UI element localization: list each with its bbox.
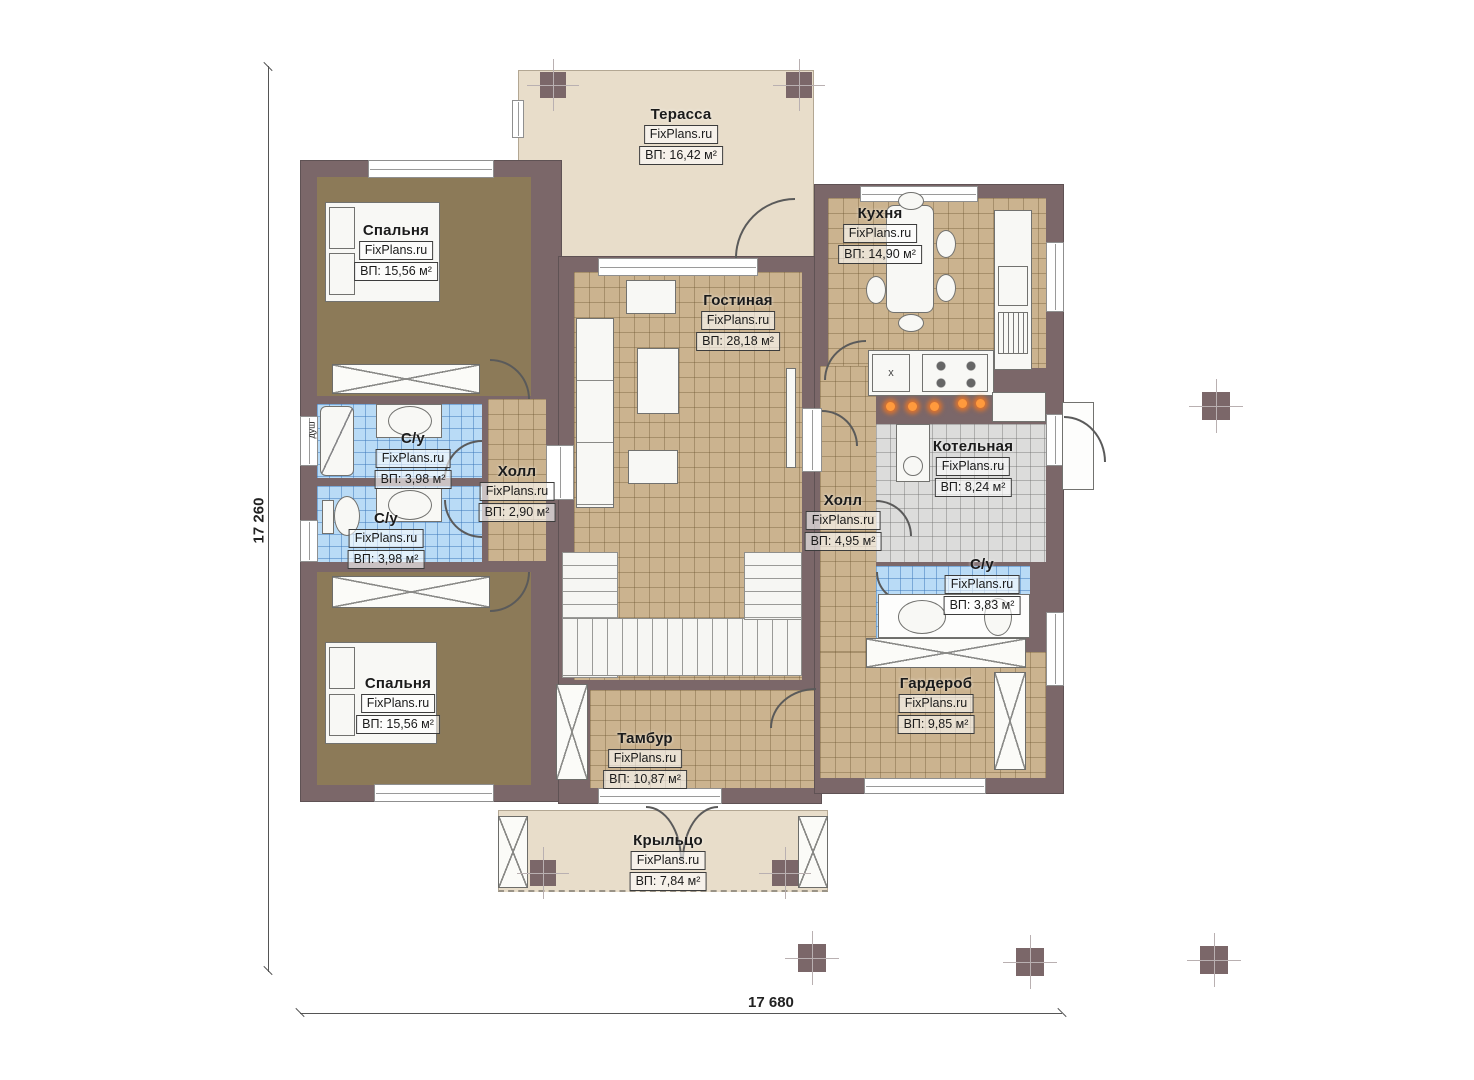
floor-plan: душ x Терасса bbox=[0, 0, 1474, 1080]
sink-mark: x bbox=[888, 367, 894, 379]
area-box: ВП: 15,56 м² bbox=[356, 715, 440, 734]
burner-flame bbox=[886, 402, 895, 411]
cooktop bbox=[922, 354, 988, 392]
area-box: ВП: 2,90 м² bbox=[479, 503, 556, 522]
sink-mark-box: x bbox=[872, 354, 910, 392]
site-column bbox=[798, 944, 826, 972]
wardrobe-cabinet bbox=[332, 364, 480, 394]
kitchen-sink-unit bbox=[998, 266, 1028, 306]
room-label-bath3: С/у FixPlans.ru ВП: 3,83 м² bbox=[944, 556, 1021, 615]
side-entry-door-swing bbox=[1064, 416, 1106, 462]
room-label-terrace: Терасса FixPlans.ru ВП: 16,42 м² bbox=[639, 106, 723, 165]
brand-box: FixPlans.ru bbox=[843, 224, 918, 243]
window bbox=[864, 778, 986, 794]
chair bbox=[936, 274, 956, 302]
area-box: ВП: 7,84 м² bbox=[630, 872, 707, 891]
shower bbox=[320, 406, 354, 476]
room-name: Гостиная bbox=[703, 292, 772, 309]
room-name: Холл bbox=[498, 463, 536, 480]
room-name: Терасса bbox=[651, 106, 712, 123]
burner-flame bbox=[958, 399, 967, 408]
window bbox=[1046, 242, 1064, 312]
terrace-column bbox=[540, 72, 566, 98]
room-name: Холл bbox=[824, 492, 862, 509]
room-label-hall-small: Холл FixPlans.ru ВП: 2,90 м² bbox=[479, 463, 556, 522]
pillow bbox=[329, 647, 355, 689]
room-name: Спальня bbox=[363, 222, 429, 239]
wardrobe-cabinet bbox=[556, 684, 588, 780]
brand-box: FixPlans.ru bbox=[945, 575, 1020, 594]
area-box: ВП: 14,90 м² bbox=[838, 245, 922, 264]
burner-flame bbox=[976, 399, 985, 408]
vertical-dimension-text: 17 260 bbox=[250, 498, 267, 544]
room-label-bath2: С/у FixPlans.ru ВП: 3,98 м² bbox=[348, 510, 425, 569]
wardrobe-cabinet bbox=[332, 576, 490, 608]
room-label-wardrobe: Гардероб FixPlans.ru ВП: 9,85 м² bbox=[898, 675, 975, 734]
coffee-table bbox=[637, 348, 679, 414]
burner-flame bbox=[908, 402, 917, 411]
brand-box: FixPlans.ru bbox=[644, 125, 719, 144]
window bbox=[300, 520, 318, 562]
entrance-opening bbox=[598, 788, 722, 804]
area-box: ВП: 28,18 м² bbox=[696, 332, 780, 351]
chair bbox=[898, 314, 924, 332]
boiler-dial bbox=[903, 456, 923, 476]
room-name: Котельная bbox=[933, 438, 1013, 455]
shower-label: душ bbox=[306, 422, 316, 439]
window bbox=[374, 784, 494, 802]
brand-box: FixPlans.ru bbox=[480, 482, 555, 501]
terrace-sliding-window bbox=[598, 258, 758, 276]
porch-column bbox=[530, 860, 556, 886]
stair-flight-bottom bbox=[562, 618, 802, 676]
wardrobe-cabinet bbox=[866, 638, 1026, 668]
room-name: Кухня bbox=[858, 205, 903, 222]
brand-box: FixPlans.ru bbox=[349, 529, 424, 548]
tv-unit bbox=[786, 368, 796, 468]
site-column bbox=[1200, 946, 1228, 974]
room-label-bath1: С/у FixPlans.ru ВП: 3,98 м² bbox=[375, 430, 452, 489]
horizontal-dimension-line bbox=[300, 1013, 1062, 1014]
brand-box: FixPlans.ru bbox=[701, 311, 776, 330]
pillow bbox=[329, 207, 355, 249]
brand-box: FixPlans.ru bbox=[361, 694, 436, 713]
room-name: С/у bbox=[374, 510, 398, 527]
room-name: Гардероб bbox=[900, 675, 973, 692]
counter-piece bbox=[992, 392, 1046, 422]
room-label-kitchen: Кухня FixPlans.ru ВП: 14,90 м² bbox=[838, 205, 922, 264]
armchair bbox=[628, 450, 678, 484]
brand-box: FixPlans.ru bbox=[936, 457, 1011, 476]
window bbox=[1046, 612, 1064, 686]
room-name: Спальня bbox=[365, 675, 431, 692]
area-box: ВП: 10,87 м² bbox=[603, 770, 687, 789]
pillow bbox=[329, 253, 355, 295]
dishwasher bbox=[998, 312, 1028, 354]
chair bbox=[936, 230, 956, 258]
sofa bbox=[576, 318, 614, 508]
room-label-tambour: Тамбур FixPlans.ru ВП: 10,87 м² bbox=[603, 730, 687, 789]
toilet-tank bbox=[322, 500, 334, 534]
armchair bbox=[626, 280, 676, 314]
porch-column bbox=[772, 860, 798, 886]
room-name: Тамбур bbox=[617, 730, 673, 747]
room-label-bedroom2: Спальня FixPlans.ru ВП: 15,56 м² bbox=[356, 675, 440, 734]
room-label-living: Гостиная FixPlans.ru ВП: 28,18 м² bbox=[696, 292, 780, 351]
brand-box: FixPlans.ru bbox=[899, 694, 974, 713]
area-box: ВП: 3,98 м² bbox=[375, 470, 452, 489]
living-hall-opening bbox=[802, 408, 822, 472]
burner-flame bbox=[930, 402, 939, 411]
area-box: ВП: 8,24 м² bbox=[935, 478, 1012, 497]
porch-post bbox=[498, 816, 528, 888]
window bbox=[368, 160, 494, 178]
site-column bbox=[1016, 948, 1044, 976]
porch-post bbox=[798, 816, 828, 888]
area-box: ВП: 4,95 м² bbox=[805, 532, 882, 551]
chair bbox=[866, 276, 886, 304]
room-name: С/у bbox=[401, 430, 425, 447]
brand-box: FixPlans.ru bbox=[376, 449, 451, 468]
site-column bbox=[1202, 392, 1230, 420]
room-label-bedroom1: Спальня FixPlans.ru ВП: 15,56 м² bbox=[354, 222, 438, 281]
sink bbox=[898, 600, 946, 634]
brand-box: FixPlans.ru bbox=[608, 749, 683, 768]
area-box: ВП: 16,42 м² bbox=[639, 146, 723, 165]
vertical-dimension-line bbox=[268, 66, 269, 972]
area-box: ВП: 3,98 м² bbox=[348, 550, 425, 569]
stair-flight-right bbox=[744, 552, 802, 620]
pillow bbox=[329, 694, 355, 736]
terrace-edge-post bbox=[512, 100, 524, 138]
room-name: Крыльцо bbox=[633, 832, 703, 849]
area-box: ВП: 15,56 м² bbox=[354, 262, 438, 281]
room-label-hall-right: Холл FixPlans.ru ВП: 4,95 м² bbox=[805, 492, 882, 551]
room-name: С/у bbox=[970, 556, 994, 573]
brand-box: FixPlans.ru bbox=[631, 851, 706, 870]
terrace-column bbox=[786, 72, 812, 98]
area-box: ВП: 3,83 м² bbox=[944, 596, 1021, 615]
area-box: ВП: 9,85 м² bbox=[898, 715, 975, 734]
brand-box: FixPlans.ru bbox=[806, 511, 881, 530]
horizontal-dimension-text: 17 680 bbox=[748, 994, 794, 1011]
room-label-boiler: Котельная FixPlans.ru ВП: 8,24 м² bbox=[933, 438, 1013, 497]
room-label-porch: Крыльцо FixPlans.ru ВП: 7,84 м² bbox=[630, 832, 707, 891]
wardrobe-cabinet bbox=[994, 672, 1026, 770]
brand-box: FixPlans.ru bbox=[359, 241, 434, 260]
